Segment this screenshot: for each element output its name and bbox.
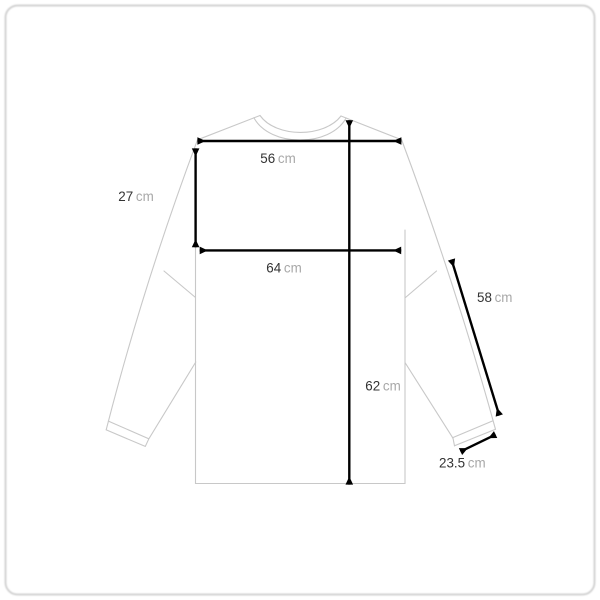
svg-text:62 cm: 62 cm	[365, 378, 400, 393]
svg-text:64 cm: 64 cm	[266, 261, 301, 276]
svg-text:23.5 cm: 23.5 cm	[439, 455, 486, 470]
svg-text:56 cm: 56 cm	[260, 151, 295, 166]
svg-text:58 cm: 58 cm	[477, 290, 512, 305]
svg-text:27 cm: 27 cm	[118, 189, 153, 204]
